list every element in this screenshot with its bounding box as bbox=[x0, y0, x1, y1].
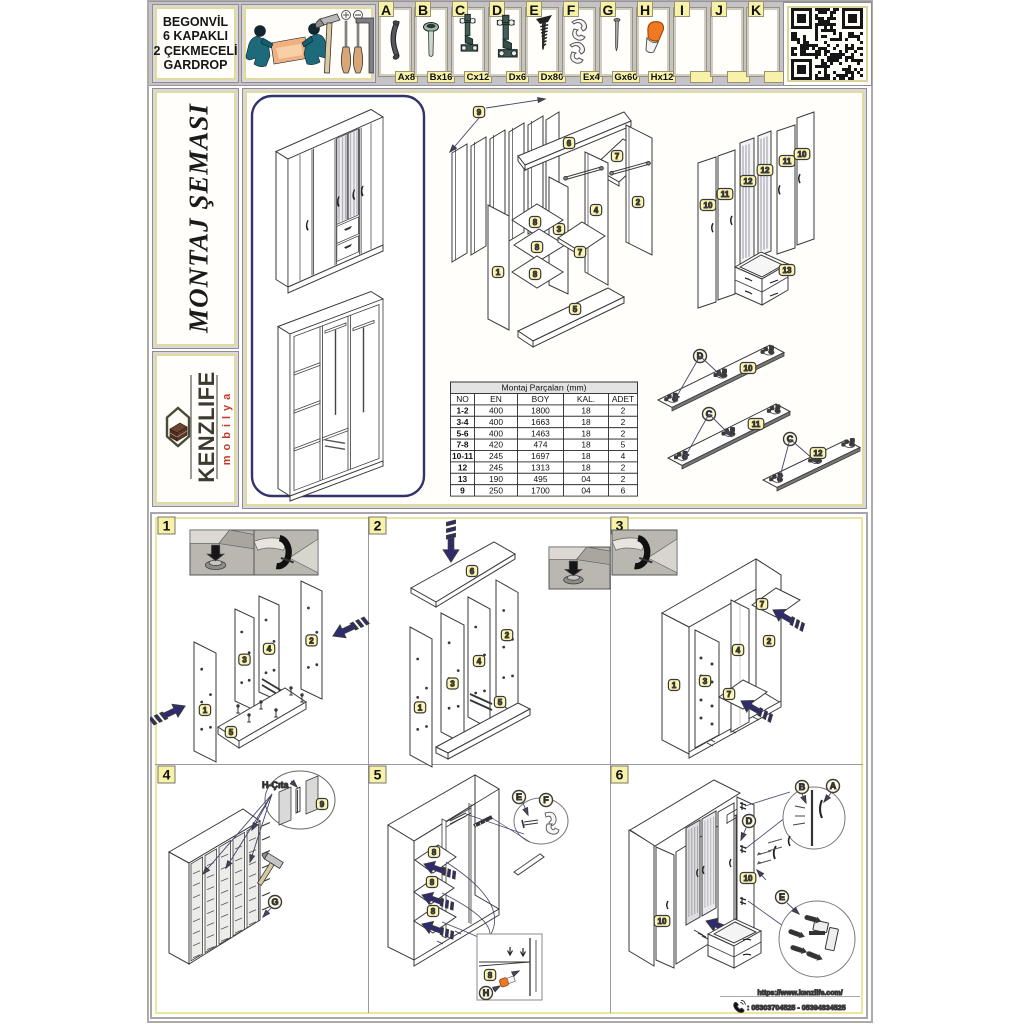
svg-text:250: 250 bbox=[489, 485, 503, 495]
svg-text:F: F bbox=[543, 795, 549, 805]
svg-text:2: 2 bbox=[374, 518, 382, 534]
svg-text:1663: 1663 bbox=[531, 417, 550, 427]
svg-text:7-8: 7-8 bbox=[456, 440, 468, 450]
svg-text:18: 18 bbox=[581, 451, 591, 461]
svg-text:5: 5 bbox=[374, 767, 382, 783]
svg-text:12: 12 bbox=[744, 177, 753, 186]
svg-text:12: 12 bbox=[814, 449, 823, 458]
svg-text:495: 495 bbox=[534, 474, 548, 484]
svg-text:12: 12 bbox=[458, 463, 468, 473]
svg-text:2: 2 bbox=[636, 198, 641, 207]
svg-text:4: 4 bbox=[477, 657, 482, 666]
svg-text:18: 18 bbox=[581, 406, 591, 416]
svg-text:10: 10 bbox=[744, 364, 753, 373]
svg-text:5: 5 bbox=[229, 728, 234, 737]
svg-text:7: 7 bbox=[727, 690, 732, 699]
svg-text:10: 10 bbox=[798, 150, 807, 159]
svg-text:13: 13 bbox=[783, 266, 792, 275]
svg-text:11: 11 bbox=[783, 157, 792, 166]
svg-text:1700: 1700 bbox=[531, 485, 550, 495]
svg-text:B: B bbox=[799, 782, 806, 792]
svg-text:1313: 1313 bbox=[531, 463, 550, 473]
svg-text:https://www.kenzlife.com/: https://www.kenzlife.com/ bbox=[757, 990, 842, 997]
svg-text:4: 4 bbox=[163, 767, 171, 783]
svg-text:3: 3 bbox=[703, 677, 708, 686]
svg-text:11: 11 bbox=[721, 190, 730, 199]
svg-text:: 05303704525 - 05394834525: : 05303704525 - 05394834525 bbox=[747, 1003, 846, 1012]
svg-text:3: 3 bbox=[450, 679, 455, 688]
svg-text:04: 04 bbox=[581, 474, 591, 484]
svg-text:8: 8 bbox=[535, 243, 540, 252]
svg-text:1-2: 1-2 bbox=[456, 406, 468, 416]
svg-text:12: 12 bbox=[761, 166, 770, 175]
svg-text:6: 6 bbox=[621, 485, 626, 495]
svg-text:NO: NO bbox=[456, 394, 469, 404]
svg-text:2: 2 bbox=[309, 636, 314, 645]
svg-text:4: 4 bbox=[594, 206, 599, 215]
svg-text:18: 18 bbox=[581, 417, 591, 427]
svg-text:11: 11 bbox=[752, 420, 761, 429]
svg-text:A: A bbox=[830, 781, 837, 791]
svg-text:04: 04 bbox=[581, 485, 591, 495]
svg-text:KENZLIFE: KENZLIFE bbox=[194, 371, 219, 483]
svg-text:1: 1 bbox=[203, 706, 208, 715]
svg-text:E: E bbox=[516, 792, 522, 802]
svg-text:10-11: 10-11 bbox=[452, 451, 473, 461]
svg-text:E: E bbox=[779, 892, 785, 902]
svg-text:KAL.: KAL. bbox=[577, 394, 595, 404]
svg-text:13: 13 bbox=[458, 474, 468, 484]
svg-text:420: 420 bbox=[489, 440, 503, 450]
svg-text:ADET: ADET bbox=[612, 394, 634, 404]
svg-text:4: 4 bbox=[621, 451, 626, 461]
svg-text:5: 5 bbox=[573, 305, 578, 314]
svg-text:3-4: 3-4 bbox=[456, 417, 468, 427]
svg-text:2: 2 bbox=[621, 417, 626, 427]
svg-text:18: 18 bbox=[581, 428, 591, 438]
svg-text:10: 10 bbox=[744, 874, 753, 883]
svg-text:2: 2 bbox=[621, 474, 626, 484]
svg-text:8: 8 bbox=[431, 907, 436, 916]
svg-text:H: H bbox=[483, 988, 490, 998]
svg-text:7: 7 bbox=[578, 248, 583, 257]
svg-text:1: 1 bbox=[418, 703, 423, 712]
svg-text:8: 8 bbox=[533, 270, 538, 279]
svg-text:H-Çıta: H-Çıta bbox=[262, 780, 289, 790]
svg-text:4: 4 bbox=[267, 645, 272, 654]
svg-text:400: 400 bbox=[489, 406, 503, 416]
svg-text:3: 3 bbox=[557, 225, 562, 234]
svg-text:8: 8 bbox=[533, 218, 538, 227]
svg-text:474: 474 bbox=[534, 440, 548, 450]
svg-text:1: 1 bbox=[163, 518, 171, 534]
svg-text:6: 6 bbox=[567, 139, 572, 148]
svg-text:400: 400 bbox=[489, 417, 503, 427]
svg-text:1697: 1697 bbox=[531, 451, 550, 461]
svg-text:3: 3 bbox=[242, 656, 247, 665]
svg-text:1463: 1463 bbox=[531, 428, 550, 438]
svg-text:2: 2 bbox=[505, 631, 510, 640]
svg-text:5: 5 bbox=[498, 698, 503, 707]
svg-text:18: 18 bbox=[581, 463, 591, 473]
svg-text:Montaj Parçaları (mm): Montaj Parçaları (mm) bbox=[502, 383, 587, 393]
svg-text:mobilya: mobilya bbox=[221, 389, 233, 466]
svg-text:7: 7 bbox=[615, 152, 620, 161]
svg-text:1: 1 bbox=[496, 268, 501, 277]
svg-text:G: G bbox=[271, 897, 278, 907]
svg-text:9: 9 bbox=[320, 800, 325, 809]
svg-text:6: 6 bbox=[470, 567, 475, 576]
svg-text:8: 8 bbox=[432, 848, 437, 857]
svg-text:5-6: 5-6 bbox=[456, 428, 468, 438]
svg-text:400: 400 bbox=[489, 428, 503, 438]
svg-text:8: 8 bbox=[488, 971, 493, 980]
svg-text:9: 9 bbox=[460, 485, 465, 495]
svg-text:190: 190 bbox=[489, 474, 503, 484]
svg-text:2: 2 bbox=[767, 637, 772, 646]
svg-text:10: 10 bbox=[658, 917, 667, 926]
svg-text:10: 10 bbox=[704, 201, 713, 210]
svg-text:2: 2 bbox=[621, 406, 626, 416]
svg-text:2: 2 bbox=[621, 428, 626, 438]
svg-text:8: 8 bbox=[430, 878, 435, 887]
svg-text:9: 9 bbox=[477, 108, 482, 117]
svg-text:5: 5 bbox=[621, 440, 626, 450]
svg-text:EN: EN bbox=[490, 394, 502, 404]
svg-text:BOY: BOY bbox=[532, 394, 550, 404]
svg-text:18: 18 bbox=[581, 440, 591, 450]
svg-text:6: 6 bbox=[616, 767, 624, 783]
svg-text:7: 7 bbox=[760, 600, 765, 609]
svg-text:2: 2 bbox=[621, 463, 626, 473]
svg-text:245: 245 bbox=[489, 463, 503, 473]
svg-text:1: 1 bbox=[672, 681, 677, 690]
svg-text:4: 4 bbox=[736, 646, 741, 655]
svg-text:245: 245 bbox=[489, 451, 503, 461]
svg-text:1800: 1800 bbox=[531, 406, 550, 416]
svg-text:D: D bbox=[746, 816, 753, 826]
